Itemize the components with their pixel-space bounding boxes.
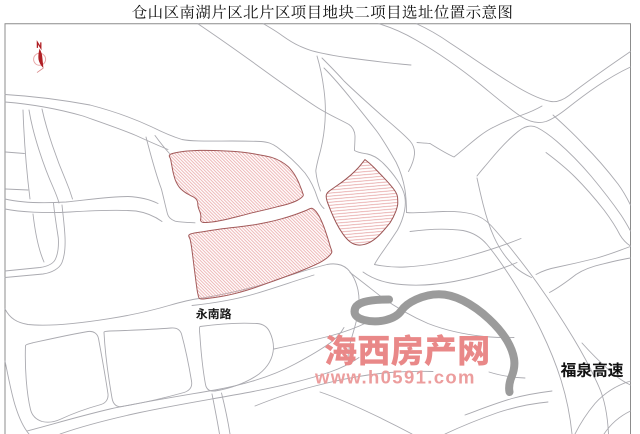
- svg-text:www.h0591.com: www.h0591.com: [314, 367, 476, 388]
